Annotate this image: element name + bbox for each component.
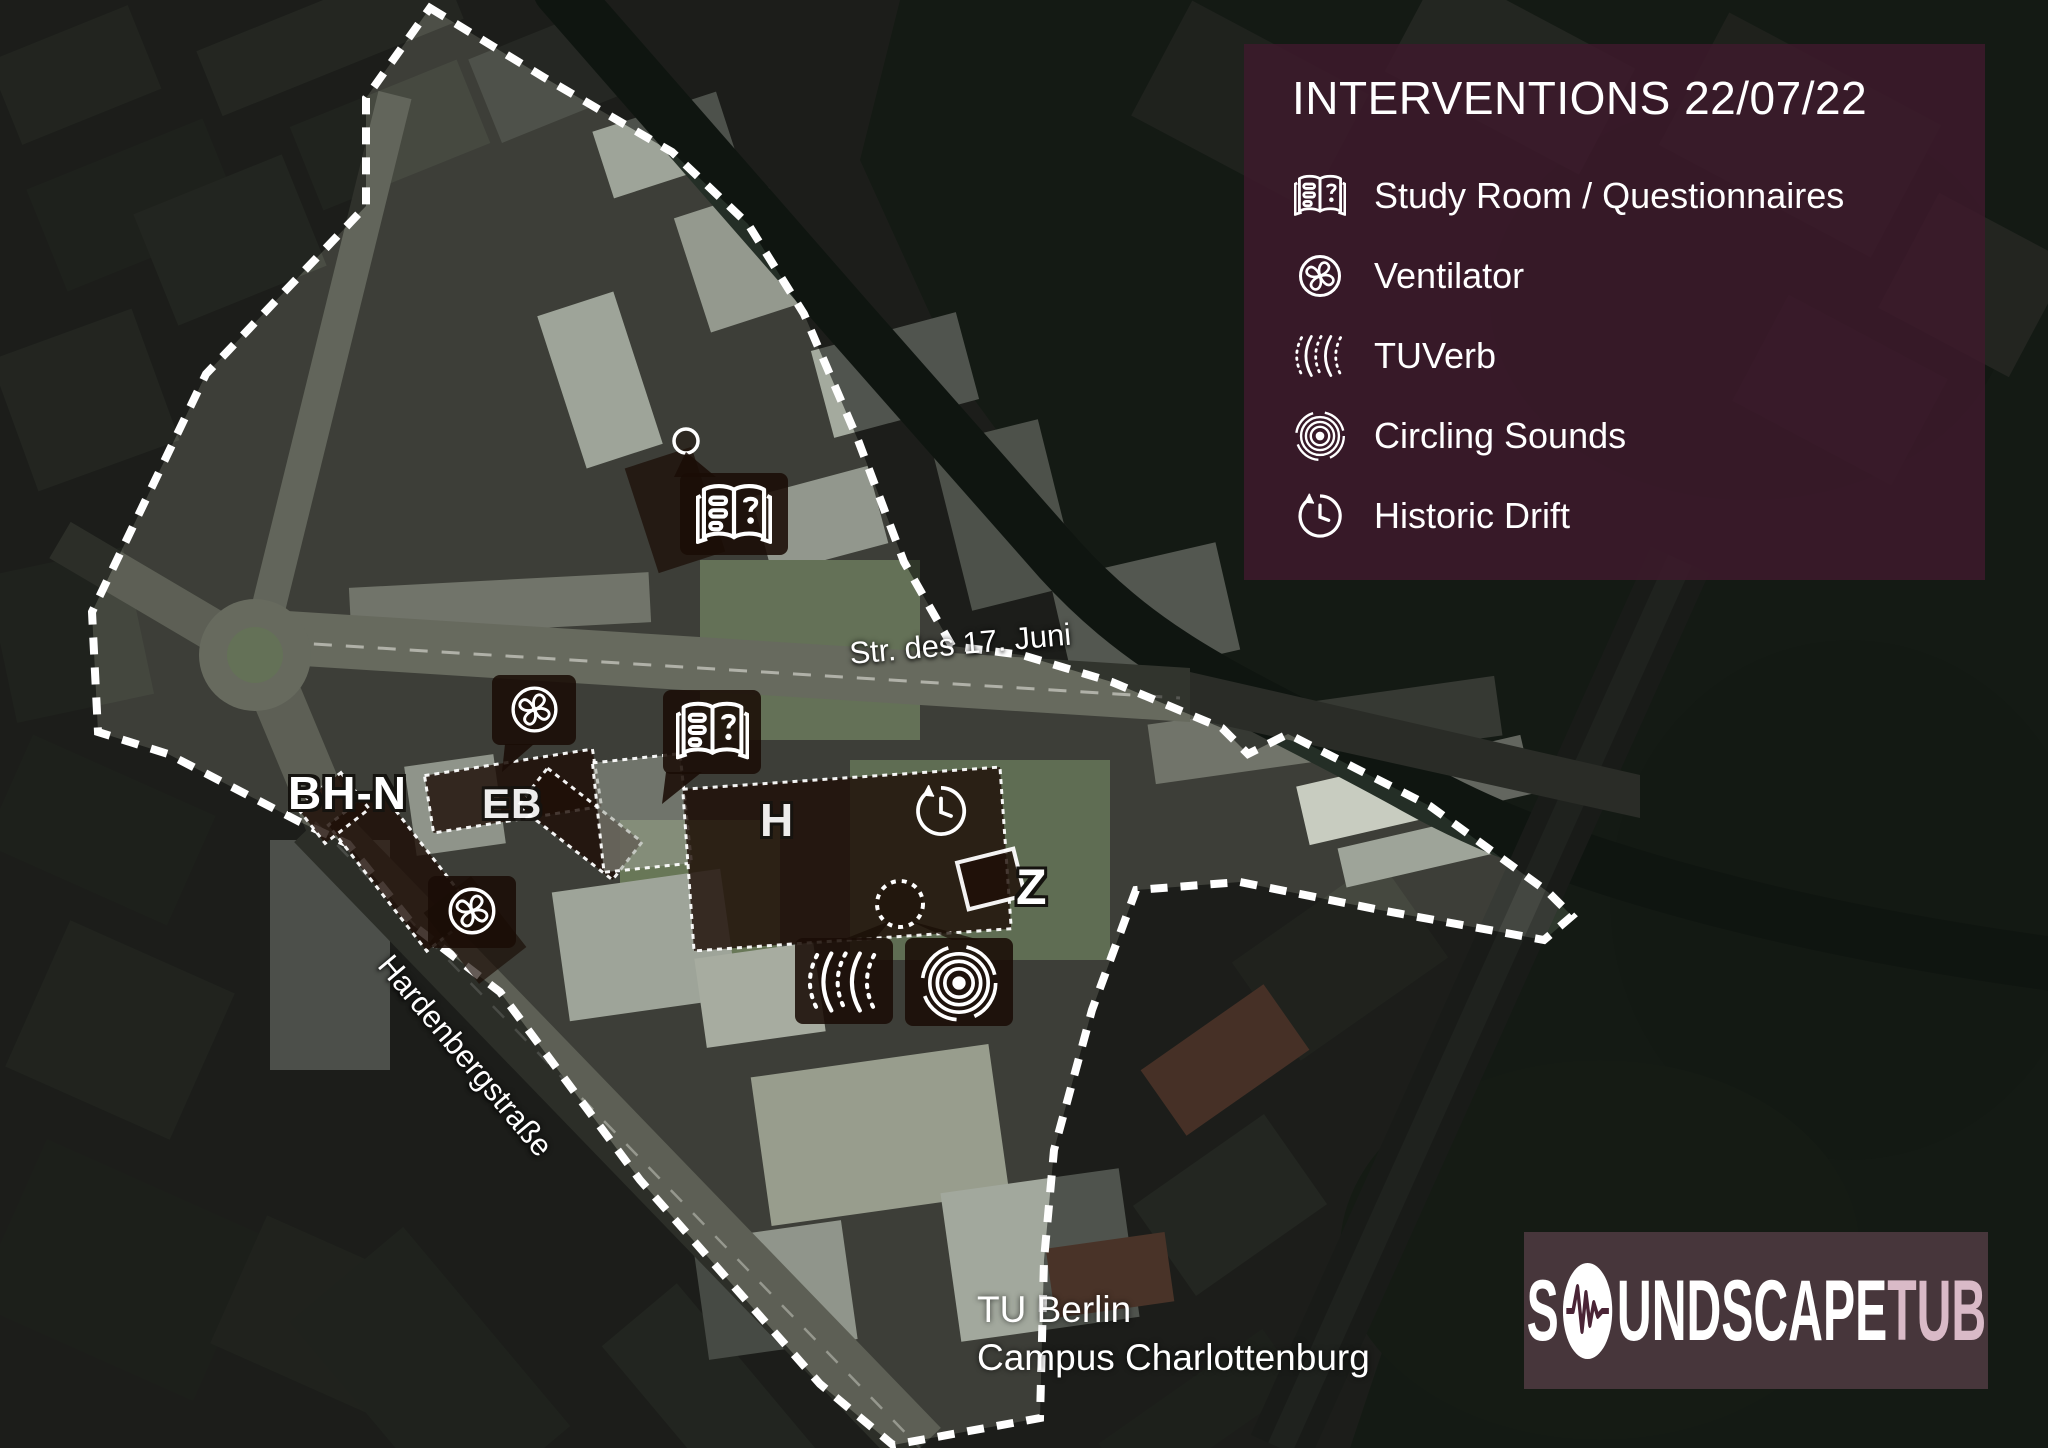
legend-item-tuverb: TUVerb [1292,330,1985,382]
logo-text-suffix: TUB [1887,1268,1986,1354]
campus-caption: TU Berlin Campus Charlottenburg [977,1286,1370,1382]
caption-line-2: Campus Charlottenburg [977,1334,1370,1382]
legend-item-ventilator: Ventilator [1292,250,1985,302]
logo-text-body: UNDSCAPE [1617,1268,1887,1354]
circling-sounds-icon [1292,408,1348,464]
caption-line-1: TU Berlin [977,1286,1370,1334]
marker-ventilator-south [428,876,516,948]
study-room-icon [1292,168,1348,224]
waveform-o-icon [1559,1261,1615,1361]
building-label-eb: EB [482,780,542,828]
location-dot [674,429,698,453]
soundscapetub-logo-panel: S UNDSCAPE TUB [1524,1232,1988,1389]
logo-text-prefix: S [1526,1268,1558,1354]
ventilator-icon [1292,248,1348,304]
location-dot-dashed [877,881,923,927]
legend-rows: Study Room / Questionnaires Ventilator T… [1292,170,1985,542]
legend-item-label: Circling Sounds [1374,415,1626,457]
legend-item-historic-drift: Historic Drift [1292,490,1985,542]
legend-item-study-room: Study Room / Questionnaires [1292,170,1985,222]
legend-title: INTERVENTIONS 22/07/22 [1292,70,1985,126]
building-h-main [683,767,1012,951]
soundscapetub-logo: S UNDSCAPE TUB [1526,1261,1986,1361]
legend-item-label: Study Room / Questionnaires [1374,175,1844,217]
building-label-bhn: BH-N [288,766,407,820]
legend-panel: INTERVENTIONS 22/07/22 Study Room / Ques… [1244,44,1985,580]
building-label-h: H [760,793,794,847]
legend-item-circling-sounds: Circling Sounds [1292,410,1985,462]
legend-item-label: TUVerb [1374,335,1496,377]
legend-item-label: Historic Drift [1374,495,1570,537]
soundscape-map-poster: BH-N EB H Z Str. des 17. Juni Hardenberg… [0,0,2048,1448]
historic-drift-icon [1292,488,1348,544]
tuverb-icon [1292,328,1348,384]
legend-item-label: Ventilator [1374,255,1524,297]
building-label-z: Z [1016,858,1048,916]
